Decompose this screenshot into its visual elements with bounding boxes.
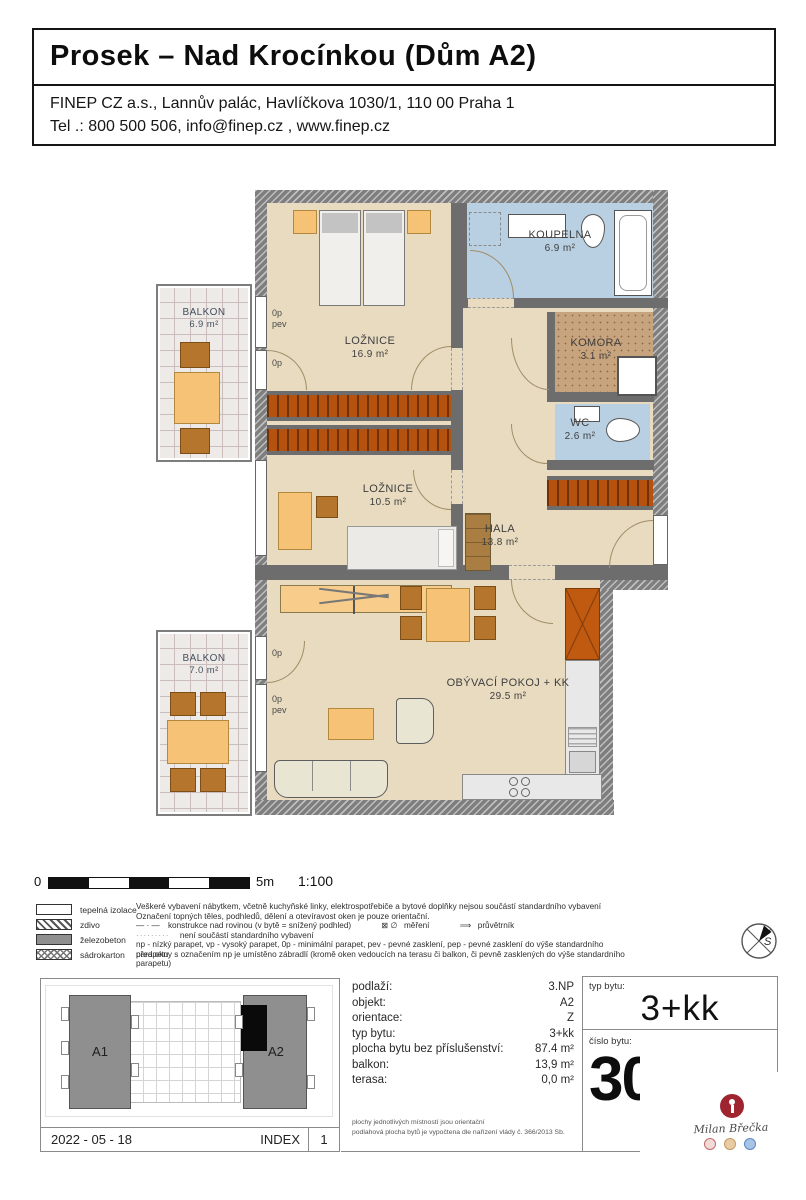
highlighted-unit: [241, 1005, 267, 1051]
balcony-tab: [307, 1075, 315, 1089]
kitchen-sink: [569, 751, 596, 773]
balcony-chair: [170, 692, 196, 716]
bathtub-inner: [619, 215, 647, 291]
balcony-door-opening: [255, 636, 267, 680]
washing-machine: [469, 212, 501, 246]
room-label-komora: KOMORA 3.1 m²: [538, 336, 654, 363]
measure-symbol: ⊠ ∅: [381, 921, 397, 930]
wardrobe-strip: [267, 425, 451, 455]
coffee-table: [328, 708, 374, 740]
info-row: balkon:13,9 m²: [352, 1059, 574, 1071]
legend-label: sádrokarton: [80, 950, 125, 960]
window-label: 0p: [272, 648, 282, 659]
wall: [255, 190, 668, 203]
fridge-vents: [568, 727, 597, 747]
building-a1: A1: [69, 995, 131, 1109]
balcony-chair: [180, 428, 210, 454]
info-row: typ bytu:3+kk: [352, 1028, 574, 1040]
scale-bar: [48, 877, 250, 889]
unit-type-box: typ bytu: 3+kk: [582, 976, 778, 1030]
balcony-table: [174, 372, 220, 424]
kitchen-tall-unit: [565, 588, 600, 660]
entrance-opening: [653, 515, 668, 565]
date-strip: 2022 - 05 - 18 INDEX 1: [41, 1127, 339, 1151]
wall: [451, 203, 463, 348]
logo-pin-icon: [720, 1094, 744, 1118]
fine-print: plochy jednotlivých místností jsou orien…: [352, 1118, 574, 1138]
index-label: INDEX: [260, 1132, 308, 1147]
balcony-tab: [61, 1041, 69, 1055]
courtyard-grid: [129, 1001, 241, 1103]
balcony-table: [167, 720, 229, 764]
legend-label: zdivo: [80, 920, 100, 930]
room-label-wc: WC 2.6 m²: [538, 416, 622, 443]
nightstand: [407, 210, 431, 234]
info-row: podlaží:3.NP: [352, 981, 574, 993]
svg-text:S: S: [764, 936, 772, 948]
unit-box-right-border: [777, 976, 778, 1072]
legend-note-4: ········· není součástí standardního vyb…: [136, 931, 636, 941]
dotted-symbol: ·········: [136, 931, 170, 940]
balcony-tab: [131, 1063, 139, 1077]
bed: [363, 210, 405, 306]
building-a2-label: A2: [268, 1044, 284, 1059]
kitchen-counter: [462, 774, 602, 800]
info-row: terasa:0,0 m²: [352, 1074, 574, 1086]
armchair: [396, 698, 434, 744]
room-label-loznice1: LOŽNICE 16.9 m²: [308, 334, 432, 361]
hob-burner: [509, 777, 518, 786]
window-label: 0p pev: [272, 308, 287, 330]
window: [255, 460, 267, 556]
balcony-tab: [235, 1015, 243, 1029]
door-opening: [509, 565, 555, 580]
window: [255, 296, 267, 348]
logo-dot-tan: [724, 1138, 736, 1150]
pillow: [322, 213, 358, 233]
door-opening: [451, 348, 463, 390]
page-title: Prosek – Nad Krocínkou (Dům A2): [34, 30, 774, 86]
legend-swatch-insulation: [36, 904, 72, 915]
scalebar-zero: 0: [34, 874, 41, 889]
balcony-tab: [235, 1063, 243, 1077]
legend-note-1: Veškeré vybavení nábytkem, včetně kuchyň…: [136, 902, 636, 912]
balcony-chair: [170, 768, 196, 792]
info-table: podlaží:3.NP objekt:A2 orientace:Z typ b…: [352, 981, 574, 1090]
wall: [547, 460, 654, 470]
balcony-door-opening: [255, 350, 267, 390]
room-label-hala: HALA 13.8 m²: [443, 522, 557, 549]
info-row: plocha bytu bez příslušenství:87.4 m²: [352, 1043, 574, 1055]
door-opening: [451, 470, 463, 504]
desk: [278, 492, 312, 550]
balcony-chair: [180, 342, 210, 368]
balcony-chair: [200, 768, 226, 792]
dining-chair: [400, 586, 422, 610]
floor-plan: KOUPELNA 6.9 m² LOŽNICE 16.9 m² KOMORA 3…: [148, 186, 688, 846]
floorplan-sheet: Prosek – Nad Krocínkou (Dům A2) FINEP CZ…: [0, 0, 806, 1200]
balcony-tab: [61, 1075, 69, 1089]
logo-dot-red: [704, 1138, 716, 1150]
tv-stand-line: [353, 586, 355, 614]
window: [255, 684, 267, 772]
dining-chair: [474, 616, 496, 640]
room-label-balkon1: BALKON 6.9 m²: [156, 306, 252, 331]
room-label-loznice2: LOŽNICE 10.5 m²: [326, 482, 450, 509]
bed: [319, 210, 361, 306]
wall: [255, 800, 614, 815]
dining-chair: [400, 616, 422, 640]
balcony-tab: [131, 1015, 139, 1029]
info-row: orientace:Z: [352, 1012, 574, 1024]
legend-note-3: — · — konstrukce nad rovinou (v bytě = s…: [136, 921, 636, 931]
room-label-obyvaci: OBÝVACÍ POKOJ + KK 29.5 m²: [416, 676, 600, 703]
balcony-tab: [307, 1007, 315, 1021]
wall: [255, 565, 668, 580]
legend-swatch-concrete: [36, 934, 72, 945]
contact-line: Tel .: 800 500 506, info@finep.cz , www.…: [50, 115, 758, 138]
address-line: FINEP CZ a.s., Lannův palác, Havlíčkova …: [50, 92, 758, 115]
wardrobe-strip: [267, 391, 451, 421]
legend-note-2: Označení topných těles, podhledů, dělení…: [136, 912, 636, 922]
unit-type-value: 3+kk: [583, 989, 777, 1029]
architect-logo: Milan Břečka: [676, 1090, 786, 1160]
compass-icon: S: [736, 918, 782, 964]
sofa: [274, 760, 388, 798]
hob-burner: [521, 777, 530, 786]
hob-burner: [509, 788, 518, 797]
wall: [451, 390, 463, 470]
door-opening: [468, 298, 514, 308]
info-row: objekt:A2: [352, 997, 574, 1009]
sofa-seam: [350, 761, 351, 791]
building-a1-label: A1: [70, 1044, 130, 1059]
room-label-balkon2: BALKON 7.0 m²: [156, 652, 252, 677]
sofa-seam: [312, 761, 313, 791]
wardrobe-strip: [547, 476, 653, 510]
legend-swatch-masonry: [36, 919, 72, 930]
bed-single: [347, 526, 457, 570]
vent-symbol: ⟹: [460, 921, 472, 930]
site-plan-box: A1 A2 2022 - 05 - 18 INDEX 1: [40, 978, 340, 1152]
dashdot-symbol: — · —: [136, 921, 160, 930]
compass: S: [736, 918, 782, 964]
plan-date: 2022 - 05 - 18: [41, 1132, 260, 1147]
scale-ratio: 1:100: [298, 873, 333, 889]
site-plan-map: A1 A2: [41, 979, 339, 1127]
hob-burner: [521, 788, 530, 797]
legend-swatch-plasterboard: [36, 949, 72, 960]
scalebar-end: 5m: [256, 874, 274, 889]
balcony-tab: [61, 1007, 69, 1021]
wall: [653, 190, 668, 515]
legend-note-6: před okny s označením np je umístěno záb…: [136, 950, 636, 969]
header-box: Prosek – Nad Krocínkou (Dům A2) FINEP CZ…: [32, 28, 776, 146]
dining-table: [426, 588, 470, 642]
balcony-chair: [200, 692, 226, 716]
legend-label: železobeton: [80, 935, 126, 945]
pillow: [366, 213, 402, 233]
company-address: FINEP CZ a.s., Lannův palác, Havlíčkova …: [34, 86, 774, 144]
index-value: 1: [308, 1128, 339, 1151]
window-label: 0p pev: [272, 694, 287, 716]
legend-label: tepelná izolace: [80, 905, 137, 915]
window-label: 0p: [272, 358, 282, 369]
dining-chair: [474, 586, 496, 610]
logo-signature: Milan Břečka: [676, 1120, 786, 1137]
logo-dot-blue: [744, 1138, 756, 1150]
room-label-koupelna: KOUPELNA 6.9 m²: [498, 228, 622, 255]
nightstand: [293, 210, 317, 234]
